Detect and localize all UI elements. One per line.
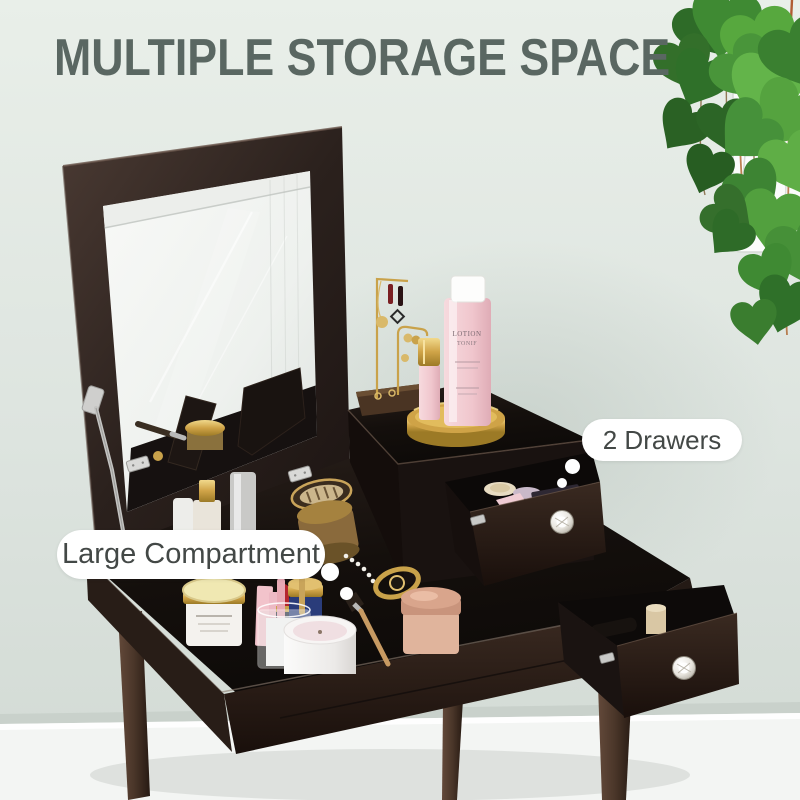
rose-gold-jar [401,587,461,654]
scene-illustration: LOTION TONIF [0,0,800,800]
cream-jar [183,578,245,646]
tassel-earring [388,284,393,304]
bottle-label-line1: LOTION [452,330,481,338]
callout-dot [321,563,339,581]
headline: MULTIPLE STORAGE SPACE [54,28,670,88]
bottle-label-line2: TONIF [457,341,477,347]
lotion-bottle: LOTION TONIF [444,276,491,426]
callout-large-compartment: Large Compartment [57,530,325,579]
callout-large-compartment-label: Large Compartment [62,538,320,571]
floor-shadow [90,749,690,800]
product-image: LOTION TONIF [0,0,800,800]
beige-cylinder [646,604,666,634]
callout-2-drawers-label: 2 Drawers [603,425,721,456]
callout-2-drawers: 2 Drawers [582,419,742,461]
upper-drawer-knob [551,511,574,534]
lower-drawer-knob [673,657,696,680]
big-candle [284,616,356,674]
gold-bottle-cap [199,480,215,502]
callout-dot [565,459,580,474]
callout-dot [557,478,567,488]
callout-dot [340,587,353,600]
lipstick-tube [418,338,440,420]
